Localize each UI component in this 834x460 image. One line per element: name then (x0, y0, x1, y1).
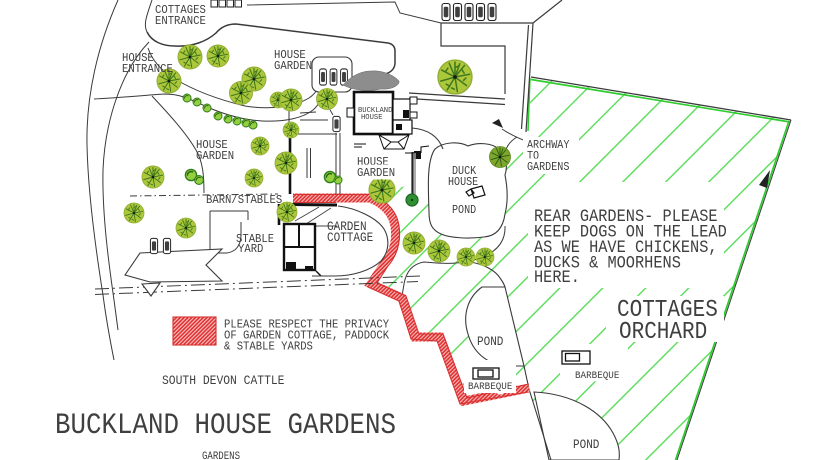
svg-text:YARD: YARD (238, 242, 263, 256)
svg-text:GARDEN: GARDEN (357, 166, 395, 180)
svg-text:POND: POND (573, 438, 599, 452)
svg-text:BARN/STABLES: BARN/STABLES (206, 193, 282, 207)
svg-text:GARDENS: GARDENS (527, 161, 569, 174)
svg-text:BUCKLAND HOUSE GARDENS: BUCKLAND HOUSE GARDENS (55, 409, 396, 443)
svg-text:BARBEQUE: BARBEQUE (575, 370, 619, 382)
svg-text:HOUSE: HOUSE (361, 114, 383, 122)
svg-text:& STABLE YARDS: & STABLE YARDS (224, 340, 313, 354)
svg-text:HOUSE: HOUSE (448, 176, 478, 189)
svg-text:POND: POND (452, 204, 476, 217)
svg-text:ENTRANCE: ENTRANCE (155, 14, 206, 28)
svg-text:SOUTH DEVON CATTLE: SOUTH DEVON CATTLE (162, 374, 285, 388)
svg-text:HERE.: HERE. (534, 268, 580, 288)
svg-text:GARDEN: GARDEN (196, 149, 234, 163)
svg-text:COTTAGE: COTTAGE (327, 231, 373, 245)
svg-text:ORCHARD: ORCHARD (619, 319, 707, 346)
svg-text:ENTRANCE: ENTRANCE (122, 62, 173, 76)
svg-text:GARDENS: GARDENS (202, 451, 240, 460)
svg-text:BARBEQUE: BARBEQUE (468, 381, 512, 393)
svg-text:POND: POND (477, 335, 503, 349)
svg-text:GARDEN: GARDEN (274, 59, 312, 73)
